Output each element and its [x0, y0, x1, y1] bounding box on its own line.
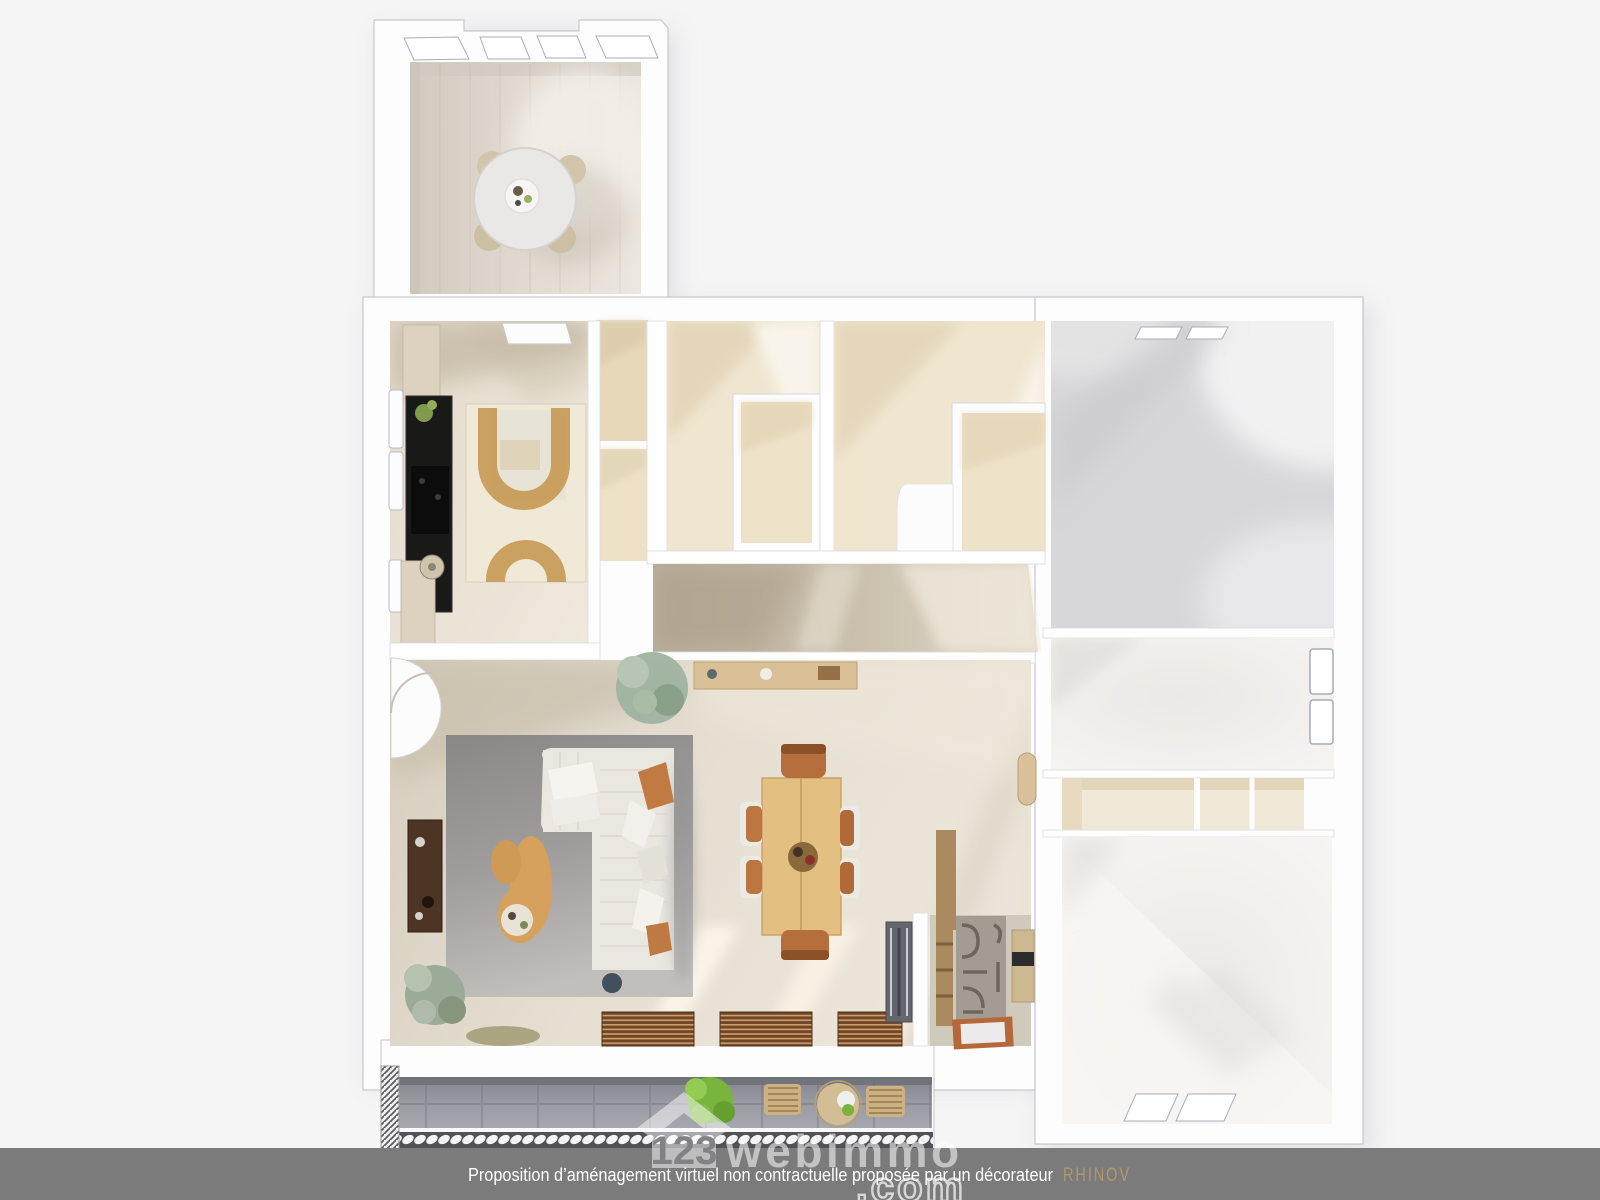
svg-text:RHINOV: RHINOV [1063, 1165, 1131, 1186]
svg-text:Proposition d’aménagement virt: Proposition d’aménagement virtuel non co… [468, 1165, 1053, 1185]
